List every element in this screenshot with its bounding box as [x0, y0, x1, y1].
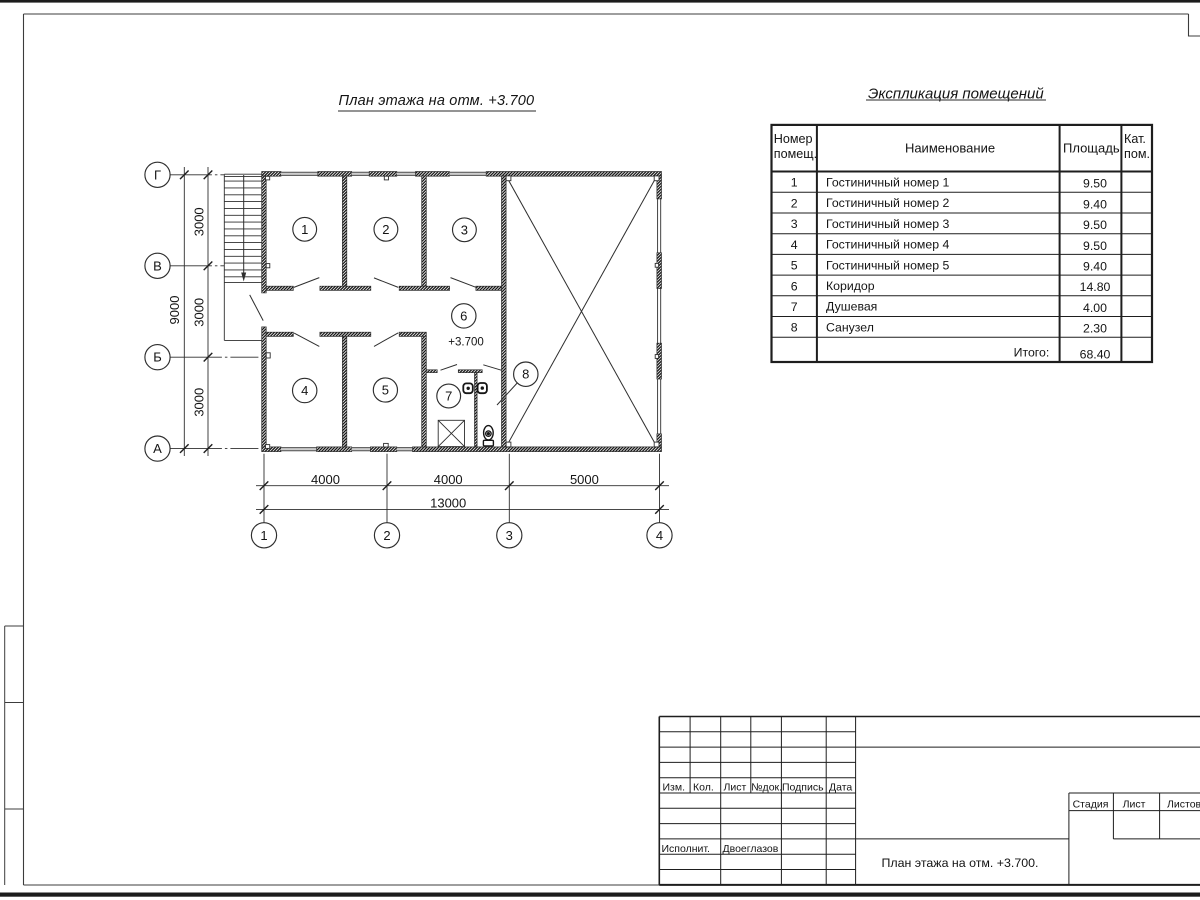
svg-text:2: 2 — [791, 197, 798, 211]
svg-text:Коридор: Коридор — [826, 279, 875, 293]
svg-text:Листов: Листов — [1167, 799, 1200, 811]
svg-text:План этажа на отм. +3.700: План этажа на отм. +3.700 — [339, 93, 535, 109]
svg-text:План этажа на отм. +3.700.: План этажа на отм. +3.700. — [882, 856, 1039, 870]
svg-text:Лист: Лист — [724, 782, 747, 794]
svg-text:8: 8 — [791, 321, 798, 335]
svg-text:помещ.: помещ. — [774, 147, 817, 161]
svg-text:1: 1 — [791, 176, 798, 190]
svg-text:Б: Б — [153, 350, 162, 365]
svg-text:9.50: 9.50 — [1083, 218, 1107, 232]
svg-text:5000: 5000 — [570, 472, 599, 487]
svg-text:4: 4 — [301, 383, 308, 398]
svg-text:Двоеглазов: Двоеглазов — [723, 843, 779, 855]
svg-text:4: 4 — [791, 238, 798, 252]
svg-text:68.40: 68.40 — [1080, 347, 1111, 361]
svg-text:Подпись: Подпись — [782, 782, 824, 794]
svg-text:А: А — [153, 441, 162, 456]
svg-text:В: В — [153, 258, 162, 273]
svg-text:9.40: 9.40 — [1083, 260, 1107, 274]
svg-text:1: 1 — [260, 528, 267, 543]
svg-text:6: 6 — [791, 279, 798, 293]
svg-text:2.30: 2.30 — [1083, 322, 1107, 336]
svg-text:Душевая: Душевая — [826, 300, 877, 314]
svg-text:9000: 9000 — [167, 296, 182, 325]
svg-text:пом.: пом. — [1124, 147, 1150, 161]
svg-text:3: 3 — [506, 528, 513, 543]
svg-text:Гостиничный номер 3: Гостиничный номер 3 — [826, 217, 949, 231]
svg-text:4000: 4000 — [434, 472, 463, 487]
svg-text:5: 5 — [791, 259, 798, 273]
svg-text:Санузел: Санузел — [826, 320, 874, 334]
svg-text:3: 3 — [791, 217, 798, 231]
svg-text:5: 5 — [382, 383, 389, 398]
svg-text:Номер: Номер — [774, 132, 813, 146]
svg-text:Г: Г — [154, 167, 161, 182]
svg-text:Наименование: Наименование — [905, 141, 995, 156]
svg-text:4.00: 4.00 — [1083, 301, 1107, 315]
svg-text:Гостиничный номер 2: Гостиничный номер 2 — [826, 196, 949, 210]
svg-text:Итого:: Итого: — [1014, 346, 1050, 360]
svg-text:2: 2 — [383, 528, 390, 543]
svg-text:Кат.: Кат. — [1124, 132, 1146, 146]
svg-text:9.40: 9.40 — [1083, 197, 1107, 211]
svg-text:+3.700: +3.700 — [448, 337, 484, 349]
svg-text:Лист: Лист — [1123, 799, 1146, 811]
svg-text:Гостиничный номер 5: Гостиничный номер 5 — [826, 258, 949, 272]
svg-text:№док.: №док. — [751, 782, 782, 794]
svg-text:4: 4 — [656, 528, 663, 543]
svg-text:4000: 4000 — [311, 472, 340, 487]
svg-text:Гостиничный номер 1: Гостиничный номер 1 — [826, 175, 949, 189]
svg-text:2: 2 — [382, 222, 389, 237]
svg-text:3: 3 — [461, 222, 468, 237]
svg-text:Стадия: Стадия — [1073, 799, 1109, 811]
svg-text:3000: 3000 — [192, 388, 207, 417]
svg-text:8: 8 — [522, 367, 529, 382]
svg-text:3000: 3000 — [192, 207, 207, 236]
svg-text:Изм.: Изм. — [663, 782, 686, 794]
svg-text:Дата: Дата — [829, 782, 852, 794]
svg-text:13000: 13000 — [430, 496, 466, 511]
svg-text:Площадь: Площадь — [1063, 141, 1120, 156]
svg-text:9.50: 9.50 — [1083, 177, 1107, 191]
svg-text:7: 7 — [791, 300, 798, 314]
svg-text:7: 7 — [445, 389, 452, 404]
svg-text:9.50: 9.50 — [1083, 239, 1107, 253]
svg-text:Исполнит.: Исполнит. — [662, 843, 710, 855]
svg-text:Кол.: Кол. — [693, 782, 714, 794]
svg-text:1: 1 — [301, 222, 308, 237]
svg-text:Гостиничный номер 4: Гостиничный номер 4 — [826, 238, 949, 252]
svg-text:3000: 3000 — [192, 298, 207, 327]
svg-text:14.80: 14.80 — [1080, 280, 1111, 294]
svg-text:6: 6 — [460, 308, 467, 323]
